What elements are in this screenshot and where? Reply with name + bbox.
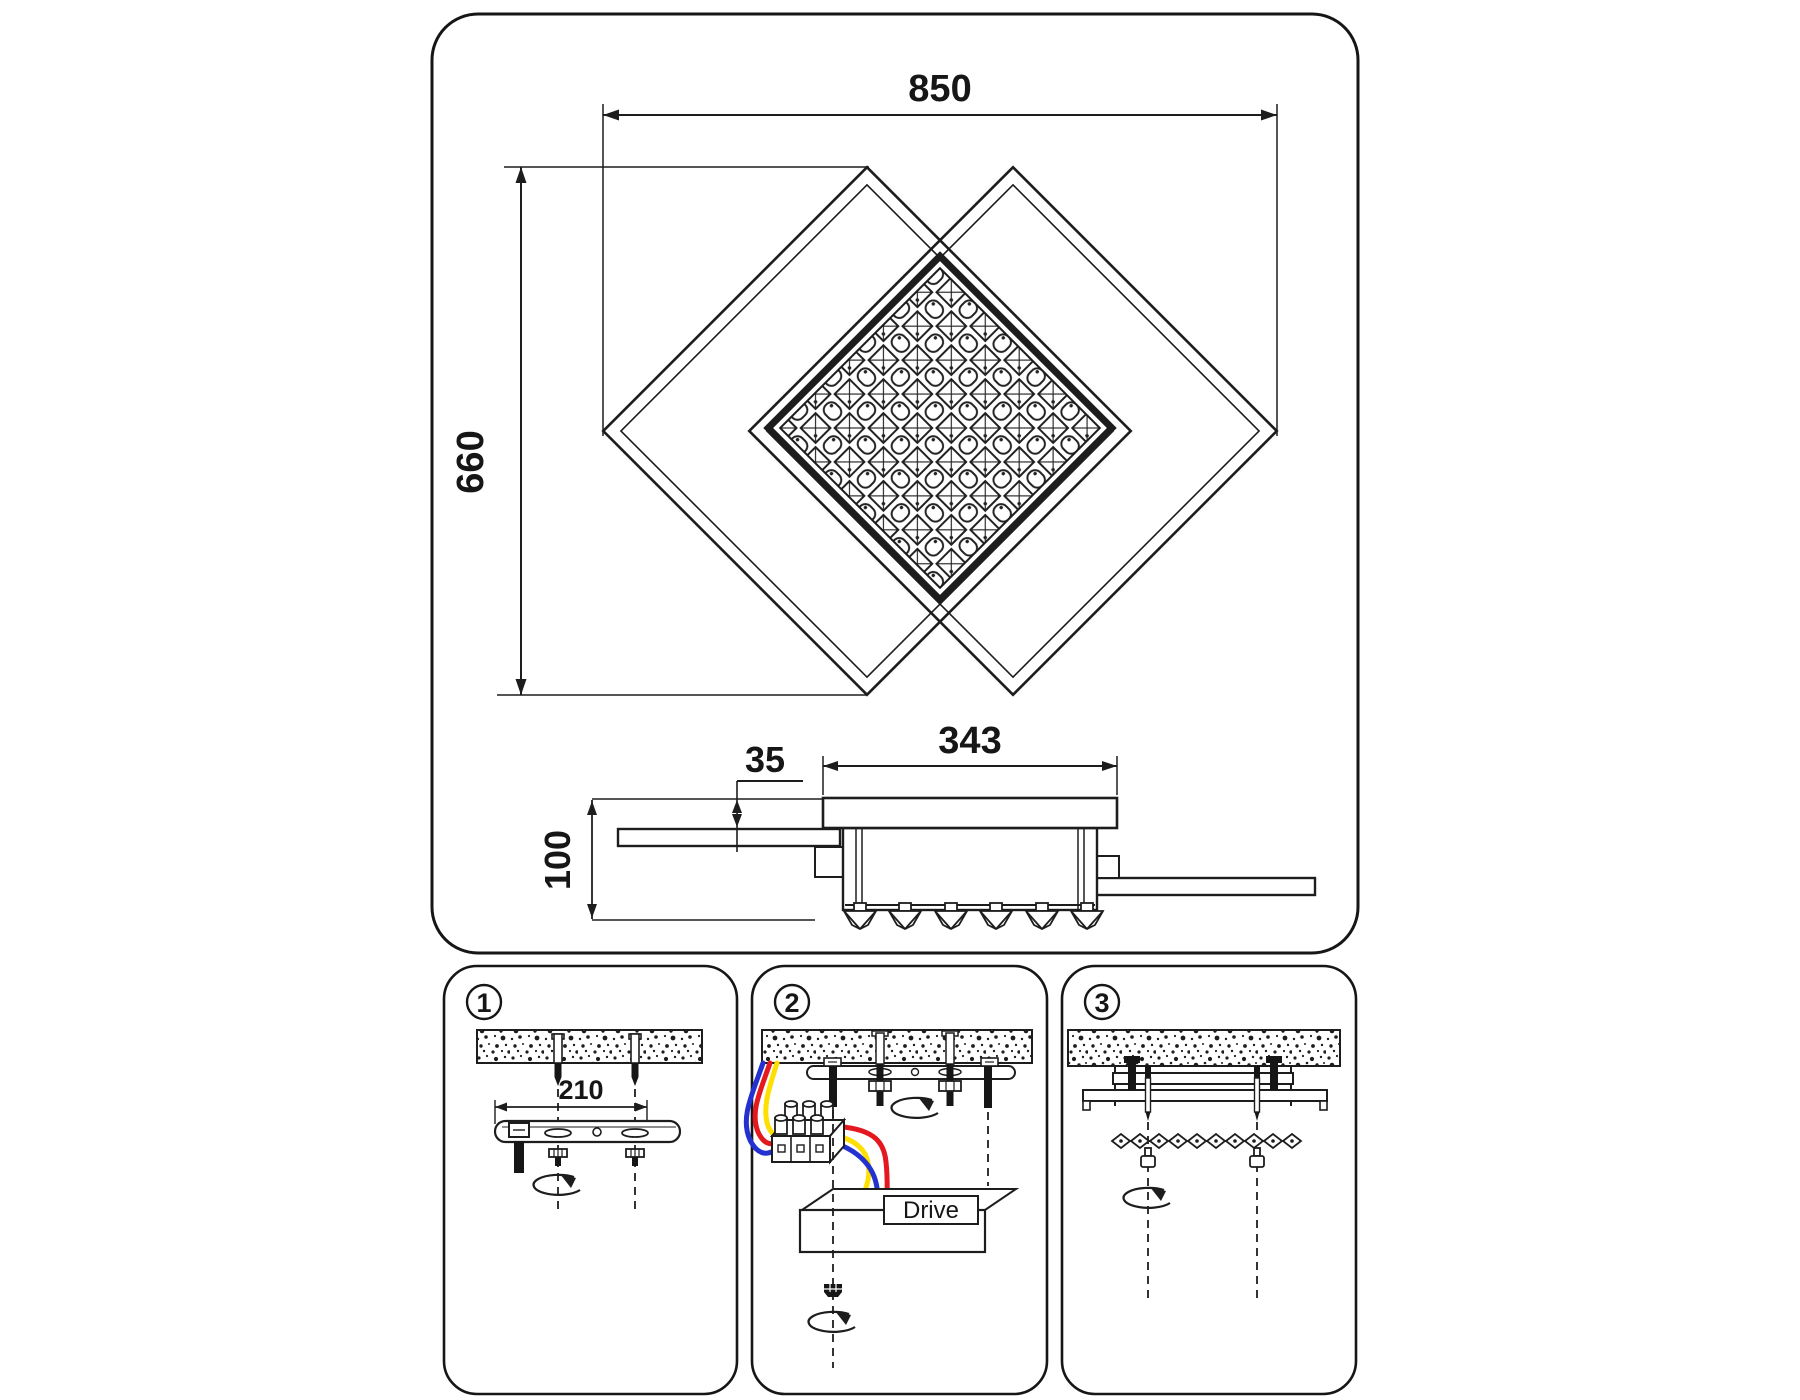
terminal-screws-front: [775, 1115, 823, 1134]
technical-drawing: 850 660: [0, 0, 1800, 1400]
ceiling-section: [477, 1030, 702, 1063]
bracket-bolt: [514, 1141, 524, 1173]
step-1-number: 1: [476, 988, 491, 1018]
dim-35-label: 35: [745, 739, 785, 780]
step-2-number: 2: [784, 988, 799, 1018]
driver-label: Drive: [903, 1197, 959, 1224]
dim-343-label: 343: [938, 720, 1001, 762]
top-plate: [823, 798, 1117, 828]
ceiling-section: [1068, 1030, 1340, 1066]
step-3-panel: 3: [1062, 966, 1356, 1394]
instruction-sheet: 850 660: [0, 0, 1800, 1400]
dimension-drawing-panel: 850 660: [432, 14, 1358, 953]
dim-850-label: 850: [908, 68, 971, 110]
center-housing: [843, 828, 1097, 910]
decorative-screw-cap: [824, 1284, 842, 1297]
dim-210-label: 210: [558, 1075, 603, 1105]
right-frame-bar: [1095, 878, 1315, 895]
left-frame-bar: [618, 829, 840, 846]
step-2-panel: 2: [746, 966, 1047, 1394]
step-1-panel: 1 210: [444, 966, 737, 1394]
dim-100-label: 100: [537, 830, 578, 890]
dim-660-label: 660: [450, 430, 492, 493]
step-3-number: 3: [1094, 988, 1109, 1018]
